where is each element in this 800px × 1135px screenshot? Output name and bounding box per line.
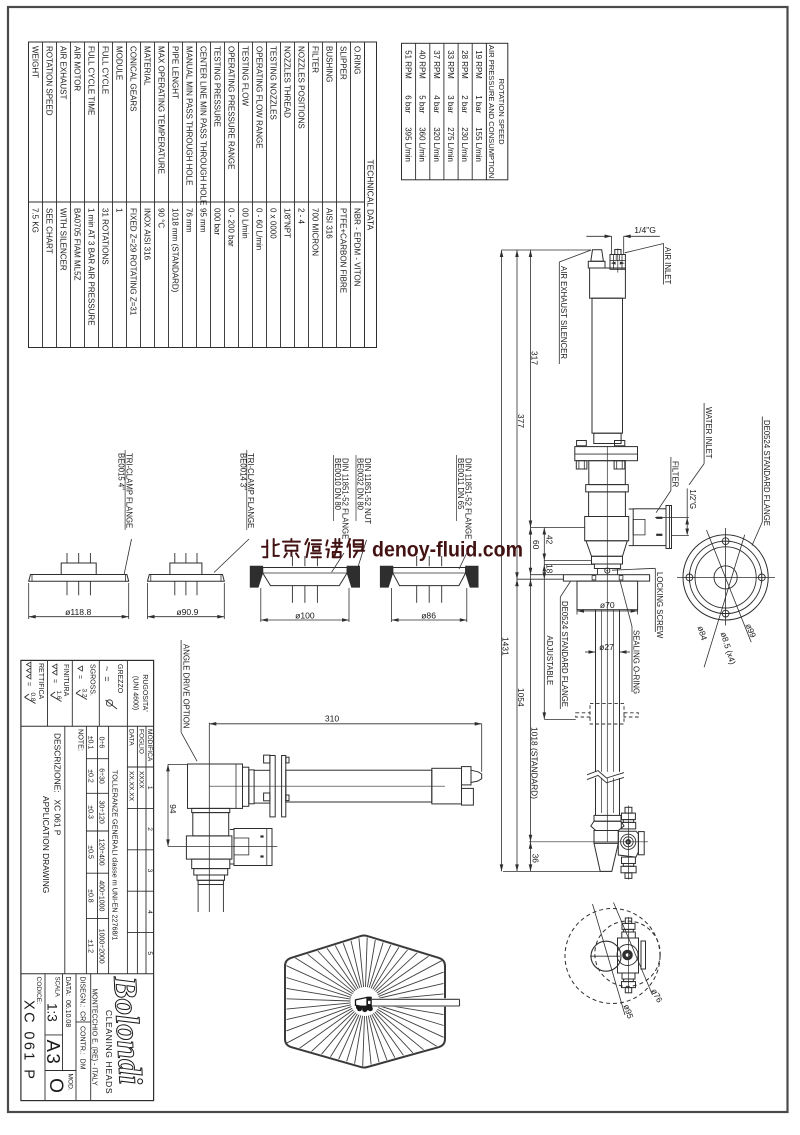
svg-text:O: O [45,1078,66,1093]
svg-text:denoy-fluid.com: denoy-fluid.com [372,538,523,562]
svg-text:XX.XX.XX: XX.XX.XX [128,771,135,802]
svg-text:DIN 11851-52 FLANGE: DIN 11851-52 FLANGE [341,458,350,539]
svg-text:ø99: ø99 [744,622,759,639]
svg-text:1/4"G: 1/4"G [634,225,656,235]
svg-text:A3: A3 [43,1040,64,1066]
svg-text:CENTER LINE MIN PASS THROUGH H: CENTER LINE MIN PASS THROUGH HOLE [199,46,208,205]
svg-text:4 bar: 4 bar [432,95,441,113]
svg-text:FILTER: FILTER [311,46,320,73]
svg-text:PTFE+CARBON FIBRE: PTFE+CARBON FIBRE [339,208,348,293]
svg-text:ø8.5 (x4): ø8.5 (x4) [719,631,738,666]
svg-text:WEIGHT: WEIGHT [31,46,40,78]
svg-text:40 RPM: 40 RPM [418,50,427,79]
svg-text:DIN 11851-52 FLANGE: DIN 11851-52 FLANGE [463,458,472,539]
svg-text:FINITURA: FINITURA [62,664,69,697]
svg-text:MATERIAL: MATERIAL [143,46,152,86]
svg-text:155 L/min: 155 L/min [474,127,483,162]
svg-text:3.2: 3.2 [81,689,88,698]
svg-text:WITH SILENCER: WITH SILENCER [59,208,68,271]
svg-text:FIXED Z=29 ROTATING Z=31: FIXED Z=29 ROTATING Z=31 [129,208,138,316]
svg-text:ø118.8: ø118.8 [65,607,91,617]
svg-text:ROTATION SPEED: ROTATION SPEED [497,79,506,145]
svg-text:0.8: 0.8 [29,693,36,702]
svg-text:FILTER: FILTER [671,461,680,488]
svg-text:5: 5 [146,951,153,955]
svg-text:±0.2: ±0.2 [87,769,94,783]
svg-text:OPERATING FLOW RANGE: OPERATING FLOW RANGE [255,46,264,149]
svg-text:SLIPPER: SLIPPER [339,46,348,80]
svg-text:36: 36 [531,854,541,864]
svg-text:AIR EXHAUST: AIR EXHAUST [59,46,68,99]
svg-text:FULL CYCLE: FULL CYCLE [101,46,110,94]
svg-text:18: 18 [545,564,555,574]
svg-text:0 x 0000: 0 x 0000 [269,208,278,239]
svg-text:120÷400: 120÷400 [98,838,105,865]
svg-text:1018 (STANDARD): 1018 (STANDARD) [530,727,540,799]
svg-text:DE0524 STANDARD FLANGE: DE0524 STANDARD FLANGE [560,601,569,707]
svg-text:=: = [76,675,83,679]
svg-text:BA0705 FIAM ML5Z: BA0705 FIAM ML5Z [73,208,82,281]
svg-text:=: = [25,682,32,686]
svg-text:PIPE LENGHT: PIPE LENGHT [171,46,180,99]
svg-text:(UNI 4600): (UNI 4600) [132,676,139,710]
svg-text:2 - 4: 2 - 4 [297,208,306,225]
svg-text:APPLICATION DRAWING: APPLICATION DRAWING [41,796,51,893]
svg-text:1/2"G: 1/2"G [688,489,697,509]
svg-text:FOGLIO: FOGLIO [137,729,144,754]
svg-text:CONICAL GEARS: CONICAL GEARS [129,46,138,112]
svg-text:1/8"NPT: 1/8"NPT [283,208,292,238]
svg-text:BE0015 4": BE0015 4" [117,453,126,490]
svg-text:0÷6: 0÷6 [98,737,105,749]
svg-text:FULL CYCLE TIME: FULL CYCLE TIME [87,46,96,115]
svg-text:28 RPM: 28 RPM [460,50,469,79]
svg-text:395 L/min: 395 L/min [403,127,412,162]
svg-text:1054: 1054 [516,688,526,707]
svg-text:42: 42 [545,535,555,545]
svg-text:ø100: ø100 [295,610,315,620]
svg-text:19 RPM: 19 RPM [474,50,483,79]
svg-text:377: 377 [516,414,526,428]
svg-text:TESTING PRESSURE: TESTING PRESSURE [213,46,222,127]
svg-text:2 bar: 2 bar [460,95,469,113]
svg-text:XC 061 P: XC 061 P [21,1000,37,1081]
svg-text:TRI-CLAMP FLANGE: TRI-CLAMP FLANGE [246,453,255,528]
svg-text:1431: 1431 [501,637,511,656]
svg-text:AISI 316: AISI 316 [325,208,334,239]
svg-text:SGROSS.: SGROSS. [89,664,96,696]
svg-text:3 bar: 3 bar [446,95,455,113]
svg-text:320 L/min: 320 L/min [432,127,441,162]
svg-text:ø86: ø86 [421,610,436,620]
svg-text:3: 3 [146,869,153,873]
svg-text:230 L/min: 230 L/min [460,127,469,162]
svg-text:MONTECCHIO E. (RE) - ITALY: MONTECCHIO E. (RE) - ITALY [91,988,98,1086]
svg-text:MANUAL MIN PASS THROUGH HOLE: MANUAL MIN PASS THROUGH HOLE [185,46,194,185]
svg-text:SEE CHART: SEE CHART [45,208,54,254]
svg-text:AIR INLET: AIR INLET [663,247,672,284]
svg-text:7.5 KG: 7.5 KG [31,208,40,233]
svg-text:BE0014 3": BE0014 3" [238,453,247,490]
svg-text:1.6: 1.6 [55,691,62,700]
svg-text:MODIFICA: MODIFICA [146,729,153,762]
svg-text:TESTING NOZZLES: TESTING NOZZLES [269,46,278,120]
svg-text:MODULE: MODULE [115,46,124,80]
svg-text:76 mm: 76 mm [185,208,194,233]
svg-text:XXXX: XXXX [137,771,144,789]
svg-text:51 RPM: 51 RPM [403,50,412,79]
svg-text:TESTING FLOW: TESTING FLOW [241,46,250,106]
svg-text:ø95: ø95 [622,1003,636,1020]
svg-text:NOZZLES POSITIONS: NOZZLES POSITIONS [297,46,306,129]
svg-text:BUSHING: BUSHING [325,46,334,82]
svg-text:1: 1 [115,208,124,213]
svg-text:TOLLERANZE GENERALI classe m U: TOLLERANZE GENERALI classe m UNI-EN 2276… [111,770,120,940]
svg-text:CONTR.: DM: CONTR.: DM [79,1026,86,1070]
svg-text:NBR - EPDM - VITON: NBR - EPDM - VITON [353,208,362,287]
svg-text:NOZZLES THREAD: NOZZLES THREAD [283,46,292,118]
svg-text:RUGOSITA': RUGOSITA' [141,674,148,711]
svg-text:ø90.9: ø90.9 [176,607,198,617]
svg-text:AIR EXHAUST SILENCER: AIR EXHAUST SILENCER [559,266,568,359]
svg-text:±0.1: ±0.1 [87,736,94,750]
svg-text:MOD.: MOD. [67,1074,74,1091]
svg-text:TRI-CLAMP FLANGE: TRI-CLAMP FLANGE [125,453,134,528]
svg-text:DIN 11851-52 NUT: DIN 11851-52 NUT [363,458,372,524]
svg-text:33 RPM: 33 RPM [446,50,455,79]
svg-text:360 L/min: 360 L/min [418,127,427,162]
svg-text:1:3: 1:3 [45,1003,60,1022]
svg-text:31 ROTATIONS: 31 ROTATIONS [101,208,110,265]
svg-text:~ =: ~ = [102,666,112,682]
svg-text:GREZZO: GREZZO [116,664,123,694]
svg-text:275 L/min: 275 L/min [446,127,455,162]
svg-text:INOX AISI 316: INOX AISI 316 [143,208,152,261]
svg-text:5 bar: 5 bar [418,95,427,113]
svg-text:CLEANING HEADS: CLEANING HEADS [104,1010,114,1094]
svg-text:ANGLE DRIVE OPTION: ANGLE DRIVE OPTION [181,644,190,728]
svg-text:000 bar: 000 bar [213,208,222,235]
svg-text:ROTATION SPEED: ROTATION SPEED [45,46,54,116]
svg-text:±1.2: ±1.2 [87,939,94,953]
svg-text:1018 mm (STANDARD): 1018 mm (STANDARD) [171,208,180,293]
svg-text:TECHNICAL DATA: TECHNICAL DATA [366,160,376,231]
svg-text:90 °C: 90 °C [157,208,166,228]
svg-text:DESCRIZIONE: XC 061 P: DESCRIZIONE: XC 061 P [53,733,63,836]
svg-text:MAX OPERATING TEMPERATURE: MAX OPERATING TEMPERATURE [157,46,166,174]
svg-text:AIR MOTOR: AIR MOTOR [73,46,82,91]
svg-text:4: 4 [146,910,153,914]
svg-text:ADJUSTABLE: ADJUSTABLE [545,636,554,686]
svg-text:O.RING: O.RING [353,46,362,74]
svg-text:=: = [51,679,58,683]
svg-text:WATER INLET: WATER INLET [704,407,713,459]
svg-text:ø70: ø70 [600,600,615,610]
svg-text:DISEGN.: CR: DISEGN.: CR [79,977,86,1022]
svg-text:00 L/min: 00 L/min [241,208,250,239]
svg-text:317: 317 [530,351,540,365]
svg-text:RETTIFICA: RETTIFICA [37,663,44,699]
svg-text:DE0524 STANDARD FLANGE: DE0524 STANDARD FLANGE [762,420,771,526]
svg-text:1: 1 [146,786,153,790]
svg-text:6 bar: 6 bar [403,95,412,113]
svg-text:SCALA: SCALA [54,977,61,998]
svg-text:LOCKING SCREW: LOCKING SCREW [655,572,664,639]
svg-text:1000÷2000: 1000÷2000 [98,929,105,964]
svg-text:OPERATING PRESSURE RANGE: OPERATING PRESSURE RANGE [227,46,236,169]
svg-text:0 - 200 bar: 0 - 200 bar [227,208,236,247]
svg-text:1 bar: 1 bar [474,95,483,113]
svg-text:±0.3: ±0.3 [87,805,94,819]
svg-text:310: 310 [325,714,340,724]
svg-text:ø27: ø27 [599,642,614,652]
svg-text:DATA: 06.10.08: DATA: 06.10.08 [64,977,71,1028]
svg-text:30÷120: 30÷120 [98,800,105,823]
svg-text:1 min AT 3 BAR AIR PRESSURE: 1 min AT 3 BAR AIR PRESSURE [87,208,96,326]
svg-text:6÷30: 6÷30 [98,768,105,784]
svg-text:±0.8: ±0.8 [87,889,94,903]
svg-text:DATA: DATA [128,729,135,746]
svg-text:±0.5: ±0.5 [87,845,94,859]
svg-text:SEALING O-RING: SEALING O-RING [632,630,641,694]
svg-text:37 RPM: 37 RPM [432,50,441,79]
svg-text:AIR PRESSURE AND CONSUMPTION: AIR PRESSURE AND CONSUMPTION [487,45,496,178]
svg-text:ø76: ø76 [649,987,665,1005]
svg-text:2: 2 [146,827,153,831]
svg-text:700 MICRON: 700 MICRON [311,208,320,256]
svg-text:ø84: ø84 [696,625,710,642]
svg-text:NOTE:: NOTE: [77,729,86,751]
svg-text:94: 94 [168,804,178,814]
svg-text:95 mm: 95 mm [199,208,208,233]
svg-text:0 - 60 L/min: 0 - 60 L/min [255,208,264,250]
svg-text:60: 60 [531,540,541,550]
svg-text:400÷1000: 400÷1000 [98,880,105,911]
